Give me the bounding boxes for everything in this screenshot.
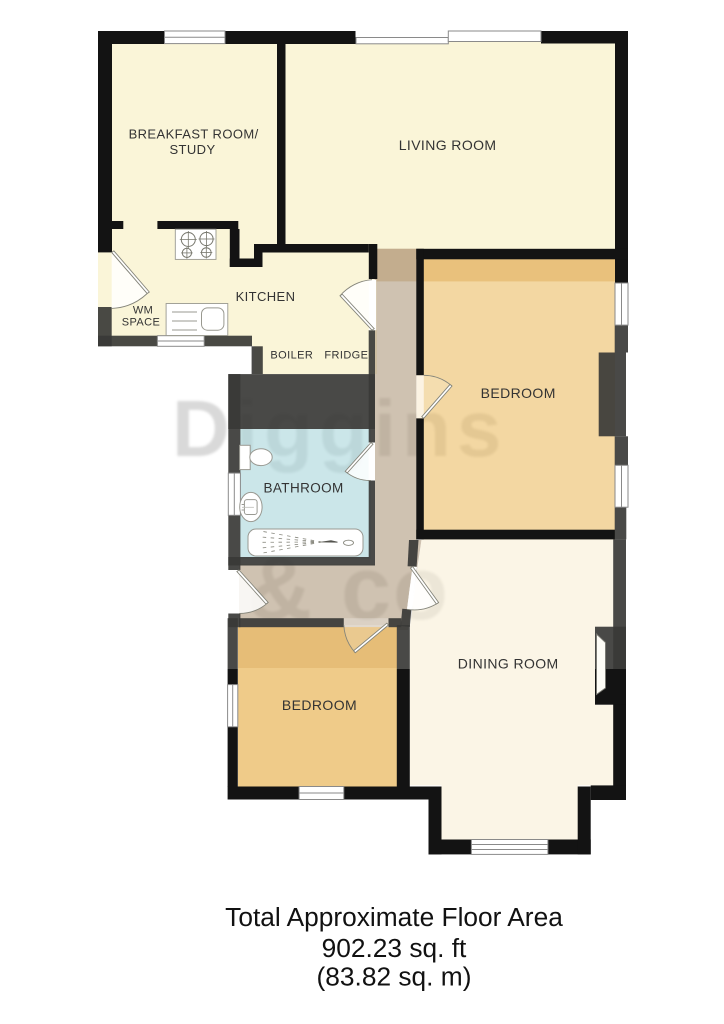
svg-text:Total Approximate Floor Area: Total Approximate Floor Area: [225, 902, 563, 932]
svg-text:WM: WM: [133, 305, 153, 317]
svg-text:BOILER: BOILER: [270, 350, 313, 362]
svg-text:STUDY: STUDY: [169, 142, 215, 157]
svg-text:LIVING ROOM: LIVING ROOM: [399, 137, 497, 153]
svg-text:BEDROOM: BEDROOM: [481, 385, 556, 401]
svg-text:902.23 sq. ft: 902.23 sq. ft: [322, 933, 467, 963]
svg-text:(83.82 sq. m): (83.82 sq. m): [317, 962, 472, 992]
svg-text:BREAKFAST ROOM/: BREAKFAST ROOM/: [129, 127, 259, 142]
svg-text:KITCHEN: KITCHEN: [236, 289, 296, 304]
svg-text:FRIDGE: FRIDGE: [324, 350, 368, 362]
svg-text:SPACE: SPACE: [122, 317, 160, 329]
svg-text:BEDROOM: BEDROOM: [282, 697, 357, 713]
svg-text:DINING ROOM: DINING ROOM: [458, 656, 559, 672]
svg-text:BATHROOM: BATHROOM: [263, 481, 343, 496]
